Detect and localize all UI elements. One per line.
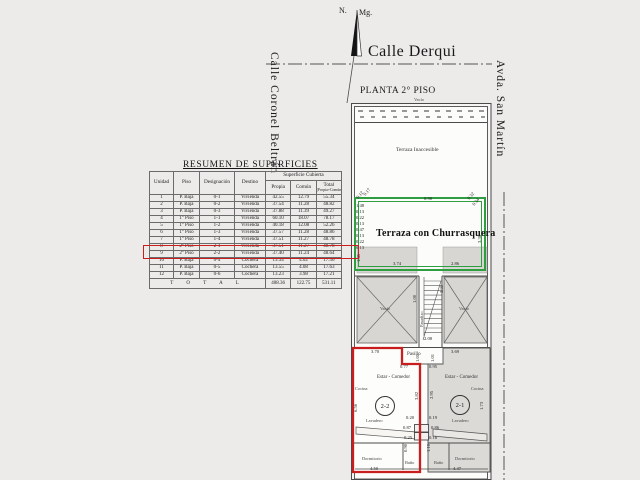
void-band-label: Vacío: [414, 97, 424, 102]
cell-piso: P. Baja: [174, 209, 200, 216]
magnetic-north-label: Mg.: [359, 8, 372, 17]
cell-piso: 1° Piso: [174, 216, 200, 223]
table-row: 4 1° Piso 1-1 Vivienda 60.10 18.07 78.17: [150, 216, 342, 223]
cell-total: 48.82: [316, 202, 341, 209]
cell-total: 49.27: [316, 209, 341, 216]
plan-title: PLANTA 2° PISO: [360, 86, 436, 96]
cell-destino: Vivienda: [235, 230, 266, 237]
cell-designacion: 0-3: [200, 209, 235, 216]
cell-unidad: 4: [150, 216, 174, 223]
void-right-label: Vacío: [459, 306, 469, 311]
table-row: 1 P. Baja 0-1 Vivienda 42.55 12.79 55.34: [150, 195, 342, 202]
cell-piso: P. Baja: [174, 272, 200, 279]
total-total: 531.11: [316, 279, 341, 289]
dormitorio-left-label: Dormitorio: [362, 456, 382, 461]
cell-propia: 37.54: [266, 202, 291, 209]
table-row: 6 1° Piso 1-3 Vivienda 37.57 11.28 48.86: [150, 230, 342, 237]
cell-destino: Vivienda: [235, 237, 266, 244]
cell-comun: 4.08: [291, 265, 316, 272]
cell-destino: Vivienda: [235, 202, 266, 209]
cell-total: 17.21: [316, 272, 341, 279]
cell-designacion: 1-3: [200, 230, 235, 237]
cell-unidad: 7: [150, 237, 174, 244]
cell-propia: 37.57: [266, 230, 291, 237]
plan-sheet: N. Mg. Calle Derqui Calle Coronel Beltrá…: [0, 0, 640, 480]
cell-comun: 11.28: [291, 230, 316, 237]
col-header-superficie: Superficie Cubierta: [266, 172, 342, 181]
bano-left-label: Baño: [405, 460, 414, 465]
col-header-propia: Propia: [266, 181, 291, 195]
cell-designacion: 0-5: [200, 265, 235, 272]
cell-comun: 11.39: [291, 209, 316, 216]
cell-piso: 1° Piso: [174, 237, 200, 244]
cell-designacion: 0-2: [200, 202, 235, 209]
cell-unidad: 2: [150, 202, 174, 209]
table-row: 3 P. Baja 0-3 Vivienda 37.88 11.39 49.27: [150, 209, 342, 216]
north-needle-line: [347, 56, 354, 103]
cell-designacion: 1-2: [200, 223, 235, 230]
bano-right-label: Baño: [434, 460, 443, 465]
cell-piso: 1° Piso: [174, 223, 200, 230]
cell-total: 52.26: [316, 223, 341, 230]
cell-propia: 37.51: [266, 237, 291, 244]
terraza-churrasquera-label: Terraza con Churrasquera: [376, 228, 495, 239]
dormitorio-right-label: Dormitorio: [455, 456, 475, 461]
total-row-label: T O T A L: [150, 279, 266, 289]
total-comun: 122.75: [291, 279, 316, 289]
estar-comedor-left-label: Estar - Comedor: [377, 375, 410, 380]
table-row: 7 1° Piso 1-4 Vivienda 37.51 11.27 48.78: [150, 237, 342, 244]
col-header-unidad: Unidad: [150, 172, 174, 195]
col-header-total: Total(Propia+Común): [316, 181, 341, 195]
unit-badge-2-1: 2-1: [450, 395, 470, 415]
cell-designacion: 0-1: [200, 195, 235, 202]
shaft-box-1: [415, 425, 429, 433]
unit-badge-2-2-text: 2-2: [381, 403, 390, 410]
lavadero-right-label: Lavadero: [452, 418, 469, 423]
cell-unidad: 11: [150, 265, 174, 272]
estar-comedor-right-label: Estar - Comedor: [445, 375, 478, 380]
cell-total: 17.63: [316, 265, 341, 272]
table-header: Unidad Piso Designación Destino Superfic…: [150, 172, 342, 195]
cell-total: 55.34: [316, 195, 341, 202]
cell-destino: Vivienda: [235, 209, 266, 216]
cocina-right-label: Cocina: [471, 386, 483, 391]
unit-badge-2-2: 2-2: [375, 396, 395, 416]
cell-piso: P. Baja: [174, 195, 200, 202]
cell-destino: Vivienda: [235, 223, 266, 230]
cell-propia: 13.23: [266, 272, 291, 279]
cell-destino: Vivienda: [235, 216, 266, 223]
terraza-inaccesible-label: Terraza Inaccesible: [396, 147, 439, 153]
cell-designacion: 1-1: [200, 216, 235, 223]
cell-piso: P. Baja: [174, 265, 200, 272]
cell-unidad: 3: [150, 209, 174, 216]
col-header-comun: Común: [291, 181, 316, 195]
total-propia: 408.36: [266, 279, 291, 289]
unit-badge-2-1-text: 2-1: [456, 402, 465, 409]
cell-comun: 12.08: [291, 223, 316, 230]
cell-designacion: 0-6: [200, 272, 235, 279]
cell-propia: 60.10: [266, 216, 291, 223]
surface-summary-table: Unidad Piso Designación Destino Superfic…: [149, 171, 342, 289]
cell-propia: 40.18: [266, 223, 291, 230]
cell-comun: 12.79: [291, 195, 316, 202]
cell-unidad: 6: [150, 230, 174, 237]
cell-comun: 3.98: [291, 272, 316, 279]
table-footer: T O T A L 408.36 122.75 531.11: [150, 279, 342, 289]
north-needle-dark: [351, 10, 357, 56]
row-highlight-box: [143, 245, 359, 259]
cell-total: 48.78: [316, 237, 341, 244]
cell-propia: 42.55: [266, 195, 291, 202]
cell-propia: 13.55: [266, 265, 291, 272]
cell-propia: 37.88: [266, 209, 291, 216]
total-header-main: Total: [324, 182, 335, 188]
cell-comun: 11.28: [291, 202, 316, 209]
cell-unidad: 5: [150, 223, 174, 230]
table-row: 2 P. Baja 0-2 Vivienda 37.54 11.28 48.82: [150, 202, 342, 209]
table-title: RESUMEN DE SUPERFICIES: [183, 160, 318, 170]
cell-piso: 1° Piso: [174, 230, 200, 237]
cell-designacion: 1-4: [200, 237, 235, 244]
cell-destino: Cochera: [235, 265, 266, 272]
cell-total: 78.17: [316, 216, 341, 223]
cell-destino: Vivienda: [235, 195, 266, 202]
cell-total: 48.86: [316, 230, 341, 237]
total-header-sub: (Propia+Común): [317, 189, 341, 193]
street-name-right: Avda. San Martín: [494, 60, 506, 195]
table-row: 11 P. Baja 0-5 Cochera 13.55 4.08 17.63: [150, 265, 342, 272]
cell-destino: Cochera: [235, 272, 266, 279]
pasadizo-label: Pasadizo: [419, 311, 424, 327]
table-row: 5 1° Piso 1-2 Vivienda 40.18 12.08 52.26: [150, 223, 342, 230]
void-left-label: Vacío: [380, 306, 390, 311]
table-row: 12 P. Baja 0-6 Cochera 13.23 3.98 17.21: [150, 272, 342, 279]
pasillo-label: Pasillo: [407, 352, 421, 357]
shaft-box-2: [415, 433, 429, 441]
cell-comun: 11.27: [291, 237, 316, 244]
street-name-top: Calle Derqui: [368, 43, 456, 61]
cell-comun: 18.07: [291, 216, 316, 223]
cell-piso: P. Baja: [174, 202, 200, 209]
cell-unidad: 1: [150, 195, 174, 202]
col-header-piso: Piso: [174, 172, 200, 195]
col-header-designacion: Designación: [200, 172, 235, 195]
table-body: 1 P. Baja 0-1 Vivienda 42.55 12.79 55.34…: [150, 195, 342, 279]
lavadero-left-label: Lavadero: [366, 418, 383, 423]
col-header-destino: Destino: [235, 172, 266, 195]
cocina-left-label: Cocina: [355, 386, 367, 391]
north-label: N.: [339, 6, 347, 15]
cell-unidad: 12: [150, 272, 174, 279]
